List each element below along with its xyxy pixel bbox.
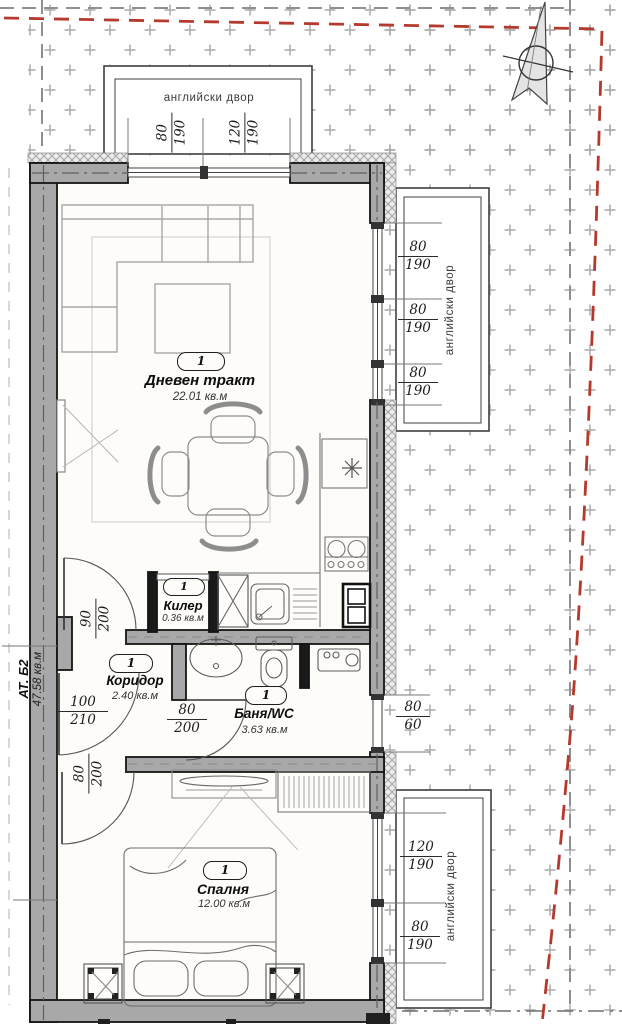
room-name-closet: Килер — [142, 598, 224, 613]
room-area-corridor: 2.40 кв.м — [95, 690, 175, 702]
apartment-total-area: 47.58 кв.м — [32, 619, 45, 739]
room-badge-living: 1 — [177, 352, 225, 371]
dim-door-bath: 80200 — [167, 703, 207, 736]
dim-bath-window: 8060 — [396, 700, 430, 733]
dim-top-window-left: 80190 — [155, 113, 188, 153]
dim-living-window-1: 80190 — [398, 240, 438, 273]
dim-bedroom-window-2: 80190 — [400, 920, 440, 953]
apartment-code: АТ. Б2 — [17, 619, 32, 739]
courtyard-label-right-lower: английски двор — [445, 831, 457, 961]
dim-top-window-right: 120190 — [228, 113, 261, 153]
room-name-corridor: Коридор — [85, 673, 185, 688]
floor-plan-canvas: английски двор английски двор английски … — [0, 0, 622, 1024]
room-area-bath: 3.63 кв.м — [222, 724, 307, 736]
room-badge-bedroom: 1 — [203, 861, 247, 880]
courtyard-label-top: английски двор — [118, 92, 300, 104]
room-badge-closet: 1 — [163, 578, 205, 596]
oven-stack — [343, 584, 370, 627]
room-name-bath: Баня/WC — [214, 706, 314, 721]
room-badge-corridor: 1 — [109, 654, 153, 673]
dim-living-window-3: 80190 — [398, 366, 438, 399]
bathroom-window — [371, 695, 384, 752]
dim-living-window-2: 80190 — [398, 303, 438, 336]
bedroom-windows — [371, 813, 384, 963]
dim-door-corridor-living: 90200 — [79, 599, 112, 639]
room-area-living: 22.01 кв.м — [140, 391, 260, 403]
room-badge-bath: 1 — [245, 686, 287, 705]
room-name-bedroom: Спалня — [173, 881, 273, 897]
floor-plan-drawing — [0, 0, 622, 1024]
living-room-windows — [371, 223, 384, 405]
dim-door-bedroom: 80200 — [72, 754, 105, 794]
room-area-bedroom: 12.00 кв.м — [174, 898, 274, 910]
courtyard-label-right-upper: английски двор — [444, 245, 456, 375]
top-window — [128, 166, 290, 179]
freezer-asterisk-icon — [342, 458, 362, 478]
dim-bedroom-window-1: 120190 — [400, 840, 442, 873]
room-area-closet: 0.36 кв.м — [147, 613, 219, 624]
apartment-id-tag: АТ. Б2 47.58 кв.м — [17, 619, 45, 739]
room-name-living: Дневен тракт — [120, 372, 280, 389]
